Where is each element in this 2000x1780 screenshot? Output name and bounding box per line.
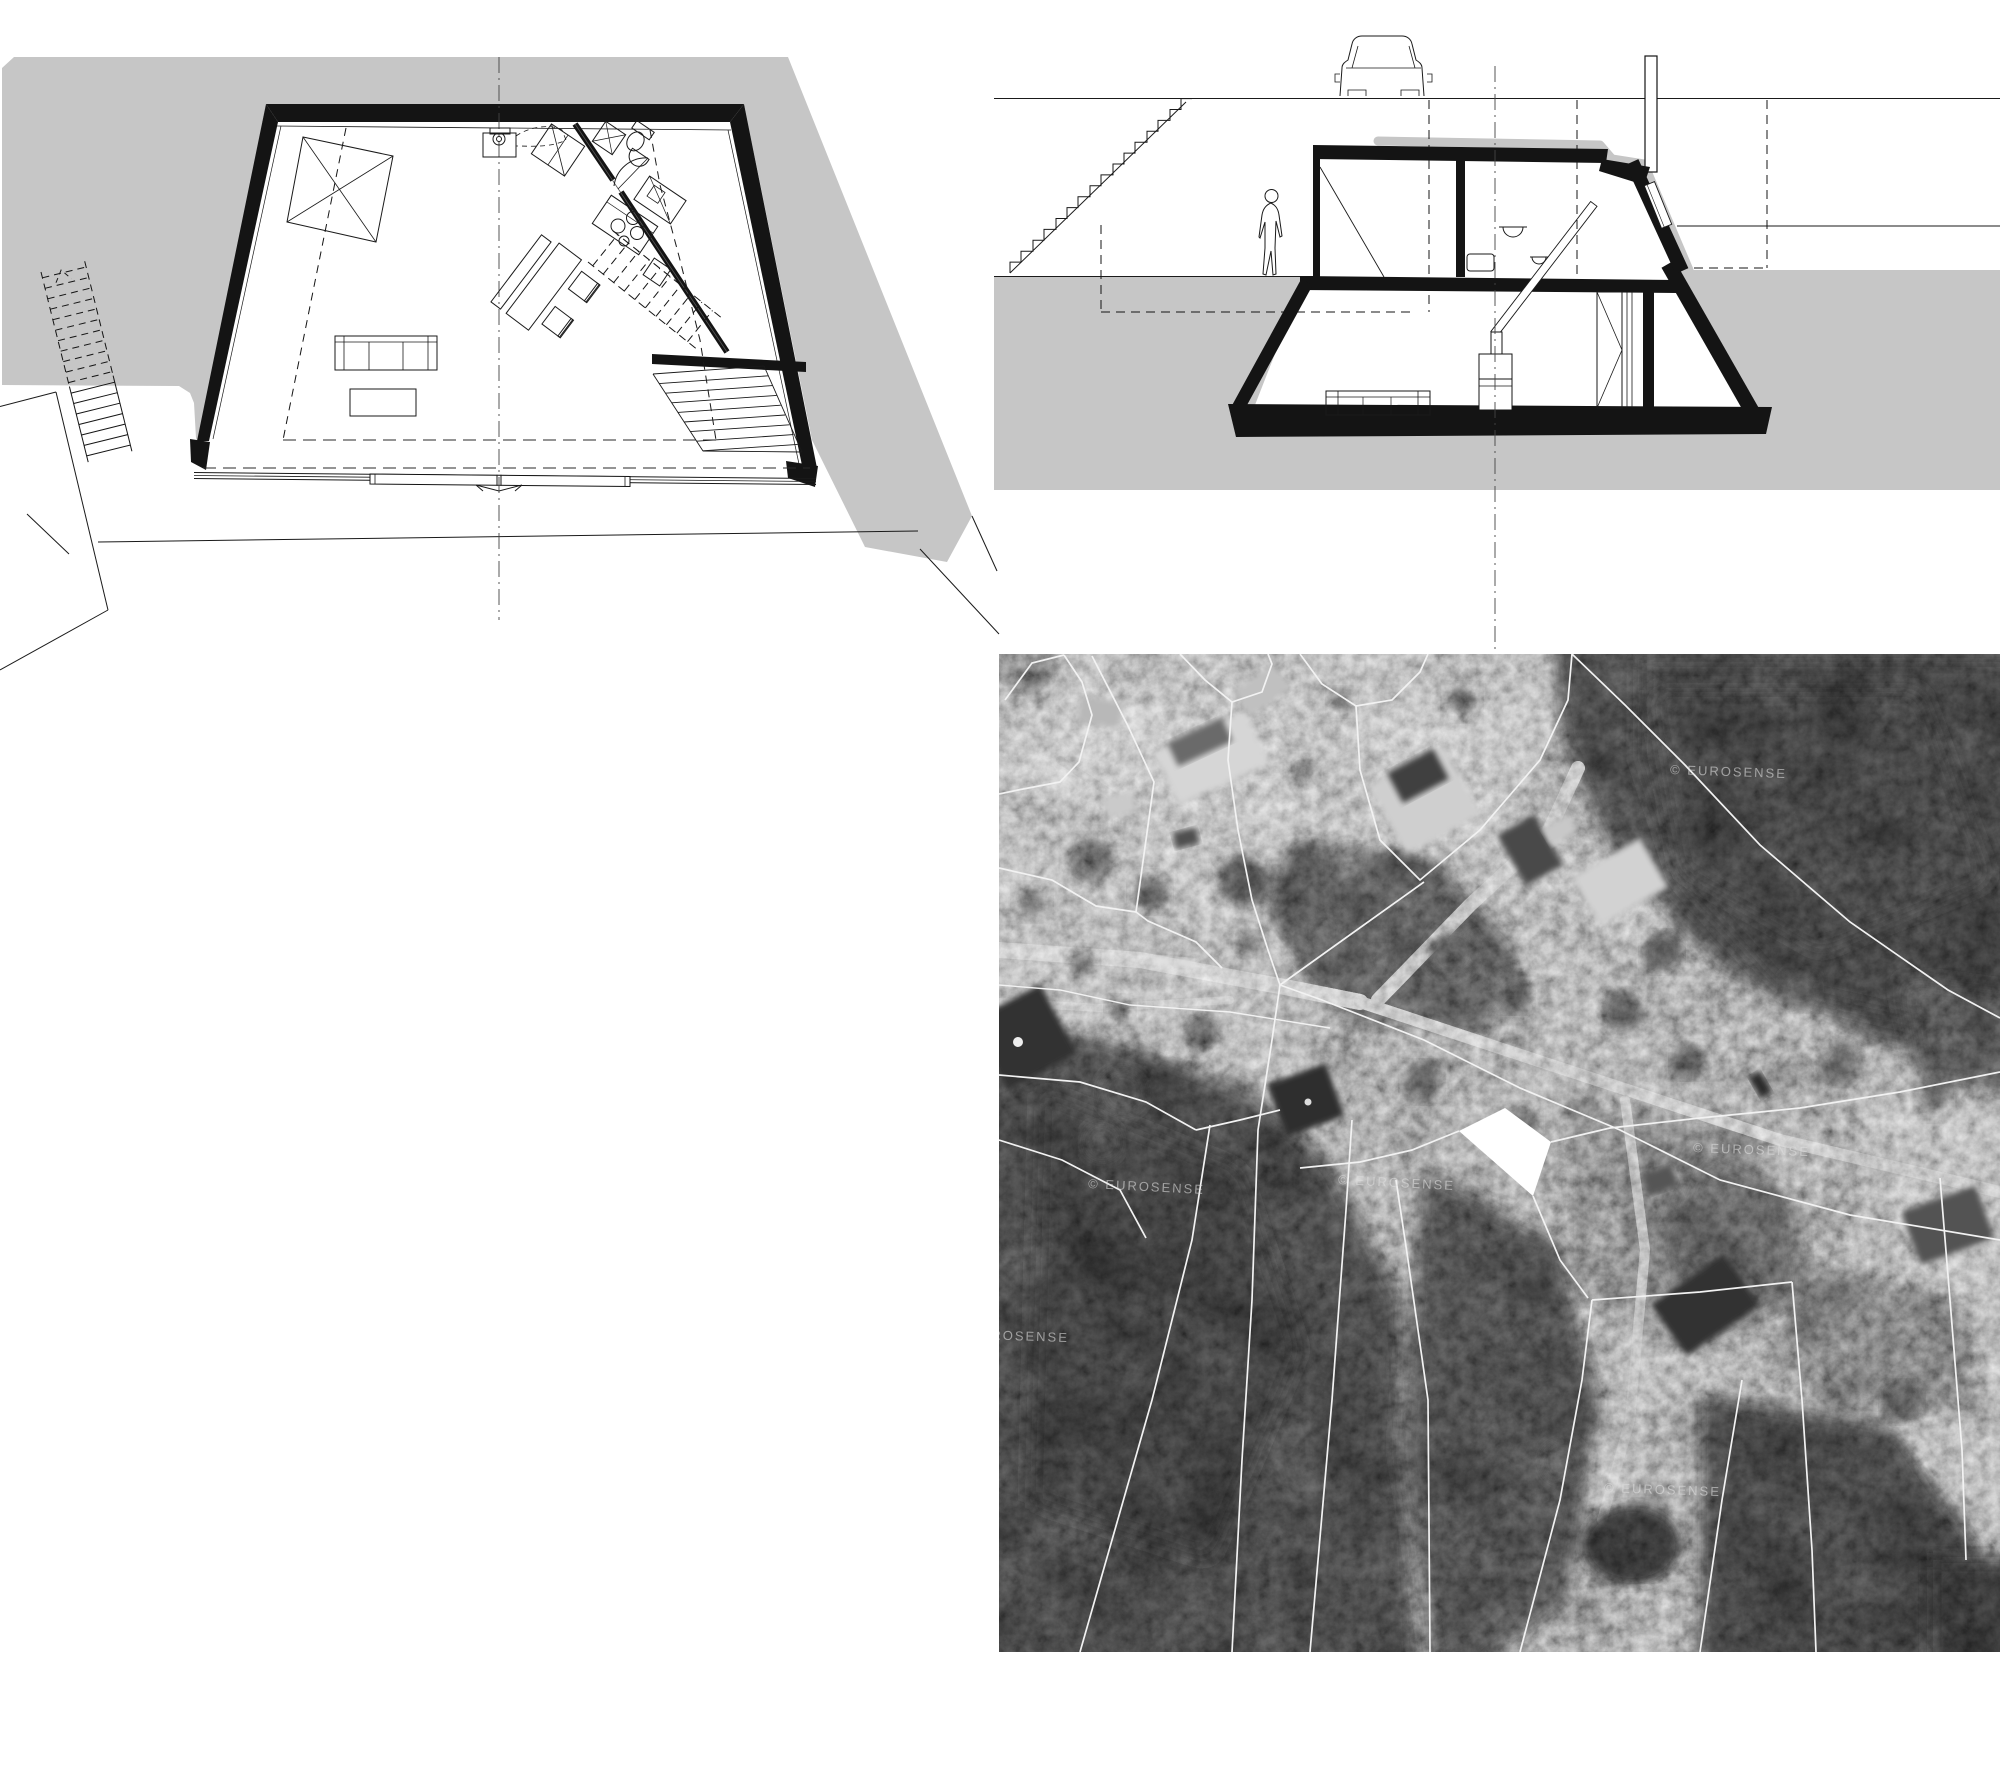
svg-text:© EUROSENSE: © EUROSENSE — [952, 1326, 1069, 1345]
